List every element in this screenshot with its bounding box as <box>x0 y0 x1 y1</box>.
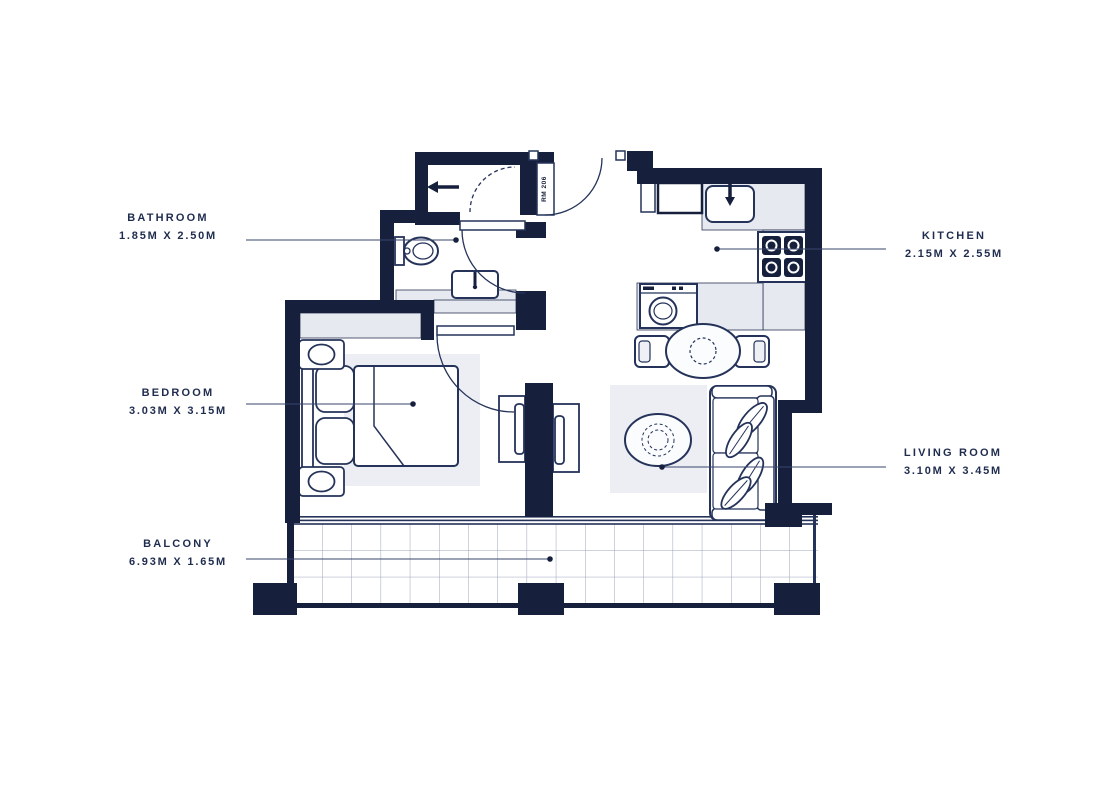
bathroom-label: BATHROOM 1.85M X 2.50M <box>88 209 248 245</box>
door-stop <box>529 151 538 160</box>
bedroom-left-wall <box>285 300 300 523</box>
room-name: BALCONY <box>98 535 258 553</box>
room-name: BATHROOM <box>88 209 248 227</box>
room-dimensions: 3.10M X 3.45M <box>873 462 1033 480</box>
bedroom-door-leaf <box>437 326 514 335</box>
pillow <box>316 366 354 412</box>
kitchen-top-wall <box>637 168 822 184</box>
bedroom-top-wall <box>285 300 434 313</box>
bathroom-door-jamb-bottom <box>516 291 546 330</box>
mattress <box>354 366 458 466</box>
bedroom-top-stub <box>421 300 434 340</box>
cabinet-end-panel <box>641 183 655 212</box>
table-lamp <box>309 345 335 365</box>
tv-unit-living <box>553 404 579 472</box>
kitchen-right-wall <box>805 168 822 413</box>
tv-screen <box>555 416 564 464</box>
closet-door-arc <box>470 167 515 212</box>
room-dimensions: 2.15M X 2.55M <box>874 245 1034 263</box>
bedroom-label: BEDROOM 3.03M X 3.15M <box>98 384 258 420</box>
door-threshold <box>434 300 516 313</box>
room-name: KITCHEN <box>874 227 1034 245</box>
floor-plan-page: BATHROOM 1.85M X 2.50M KITCHEN 2.15M X 2… <box>0 0 1100 785</box>
tv-unit-bedroom <box>499 396 525 462</box>
sofa <box>710 386 776 520</box>
right-wall-foot <box>765 503 802 527</box>
washing-machine <box>640 284 697 328</box>
stove <box>758 232 806 282</box>
bathroom-door-leaf <box>460 221 525 230</box>
pillar-right <box>774 583 820 615</box>
tv-partition-wall <box>525 383 553 517</box>
balcony-right-edge <box>813 515 816 585</box>
balcony-left-wall <box>287 523 294 583</box>
pillow <box>316 418 354 464</box>
room-name: BEDROOM <box>98 384 258 402</box>
right-wall-stub <box>798 503 832 515</box>
headboard <box>302 360 313 470</box>
room-name: LIVING ROOM <box>873 444 1033 462</box>
table-lamp <box>309 472 335 492</box>
balcony-label: BALCONY 6.93M X 1.65M <box>98 535 258 571</box>
room-dimensions: 6.93M X 1.65M <box>98 553 258 571</box>
door-stop <box>616 151 625 160</box>
tv-screen <box>515 404 524 454</box>
dining-table <box>666 324 740 378</box>
kitchen-label: KITCHEN 2.15M X 2.55M <box>874 227 1034 263</box>
entry-arrow-icon <box>427 181 459 193</box>
unit-number-label: RM 206 <box>537 164 553 214</box>
bathroom-left-wall <box>380 210 394 313</box>
nightstand-bottom <box>299 467 344 496</box>
pillar-left <box>253 583 297 615</box>
kitchen-sink <box>706 184 754 222</box>
bedroom-closet <box>300 313 421 338</box>
room-dimensions: 3.03M X 3.15M <box>98 402 258 420</box>
bed <box>302 360 458 470</box>
pillar-middle <box>518 583 564 615</box>
toilet <box>395 237 438 265</box>
fridge <box>658 183 702 213</box>
dining-set <box>635 324 769 378</box>
closet-right-wall <box>520 152 537 215</box>
nightstand-top <box>299 340 344 369</box>
coffee-table <box>625 414 691 466</box>
room-dimensions: 1.85M X 2.50M <box>88 227 248 245</box>
bathroom-sink <box>452 271 498 298</box>
dining-chair-left <box>635 336 669 367</box>
living-room-label: LIVING ROOM 3.10M X 3.45M <box>873 444 1033 480</box>
living-right-wall <box>778 400 792 520</box>
